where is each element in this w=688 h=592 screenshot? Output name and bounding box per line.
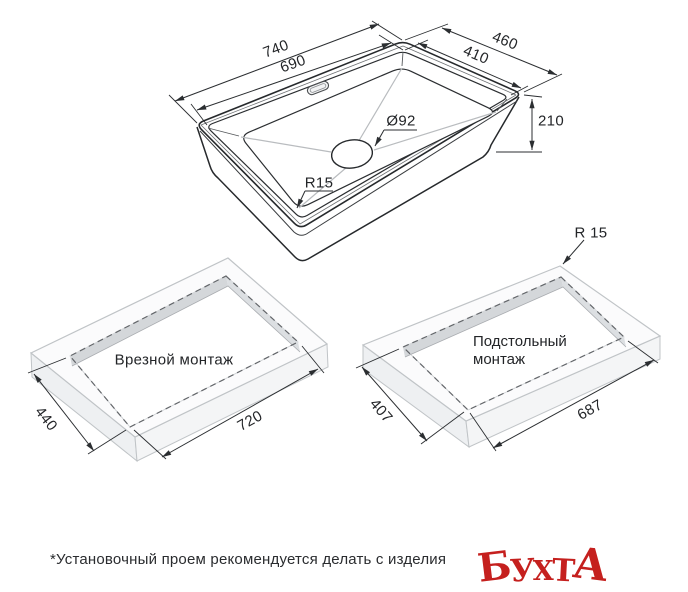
sink-technical-drawing: 740 690 460 410 210 Ø92 R15 Врезной монт… xyxy=(0,0,688,592)
dim-under-radius-label: R 15 xyxy=(575,225,608,242)
line-art-canvas xyxy=(0,0,688,592)
footnote: *Установочный проем рекомендуется делать… xyxy=(50,551,446,568)
dim-drain-diameter-label: Ø92 xyxy=(386,113,415,130)
brand-logo: Б У Х Т А xyxy=(482,526,602,584)
inset-mount-label: Врезной монтаж xyxy=(115,352,234,369)
under-mount-label-line2: монтаж xyxy=(473,351,567,369)
under-mount-label-line1: Подстольный xyxy=(473,333,567,351)
logo-letter: Б xyxy=(476,549,511,586)
logo-letter: Х xyxy=(533,561,552,584)
logo-letter: А xyxy=(571,546,608,586)
logo-letter: У xyxy=(509,557,534,585)
dim-corner-radius-label: R15 xyxy=(305,175,333,192)
dim-height-label: 210 xyxy=(538,113,564,130)
under-mount-label: Подстольный монтаж xyxy=(473,333,567,369)
